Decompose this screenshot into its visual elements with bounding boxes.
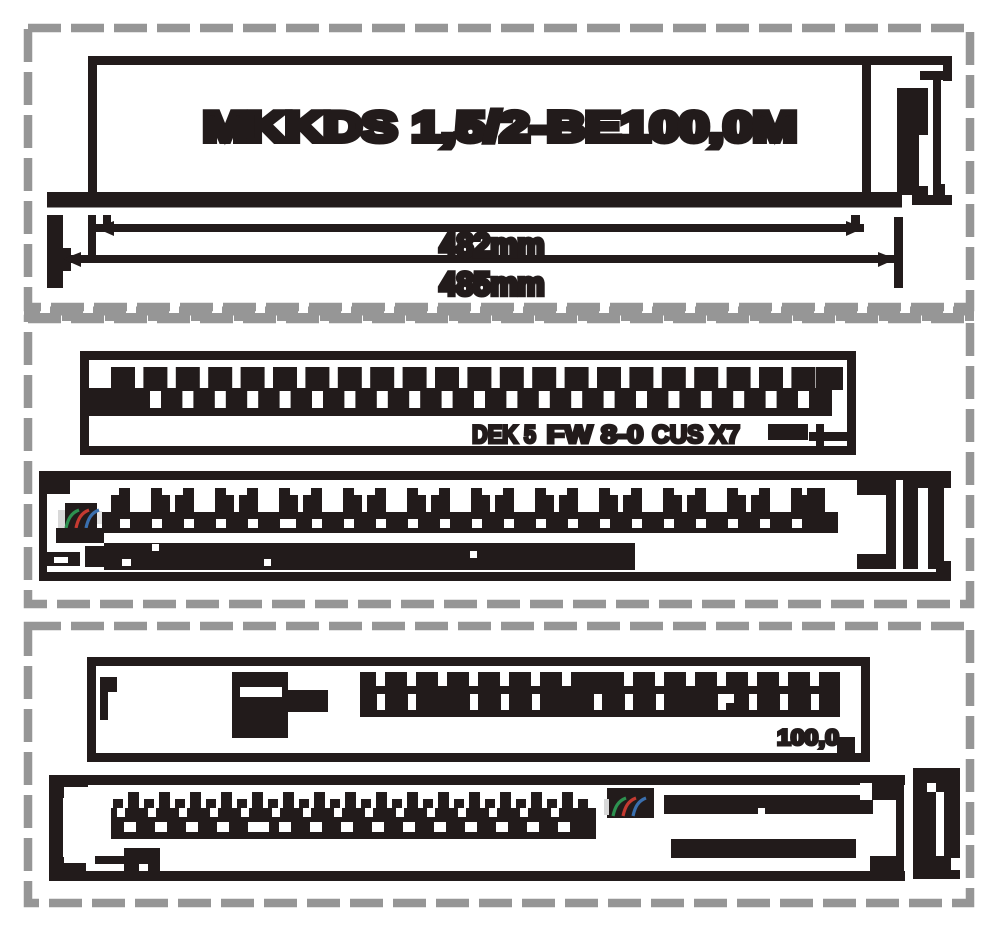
- svg-text:485mm: 485mm: [440, 266, 545, 302]
- svg-text:MKKDS 1,5/2-BE100,0M: MKKDS 1,5/2-BE100,0M: [203, 103, 797, 150]
- svg-text:CUS X7: CUS X7: [652, 421, 740, 449]
- svg-text:FW 8-0: FW 8-0: [547, 421, 644, 449]
- svg-text:482mm: 482mm: [440, 227, 545, 263]
- svg-text:100,0: 100,0: [777, 725, 839, 750]
- svg-text:DEK 5: DEK 5: [472, 421, 536, 449]
